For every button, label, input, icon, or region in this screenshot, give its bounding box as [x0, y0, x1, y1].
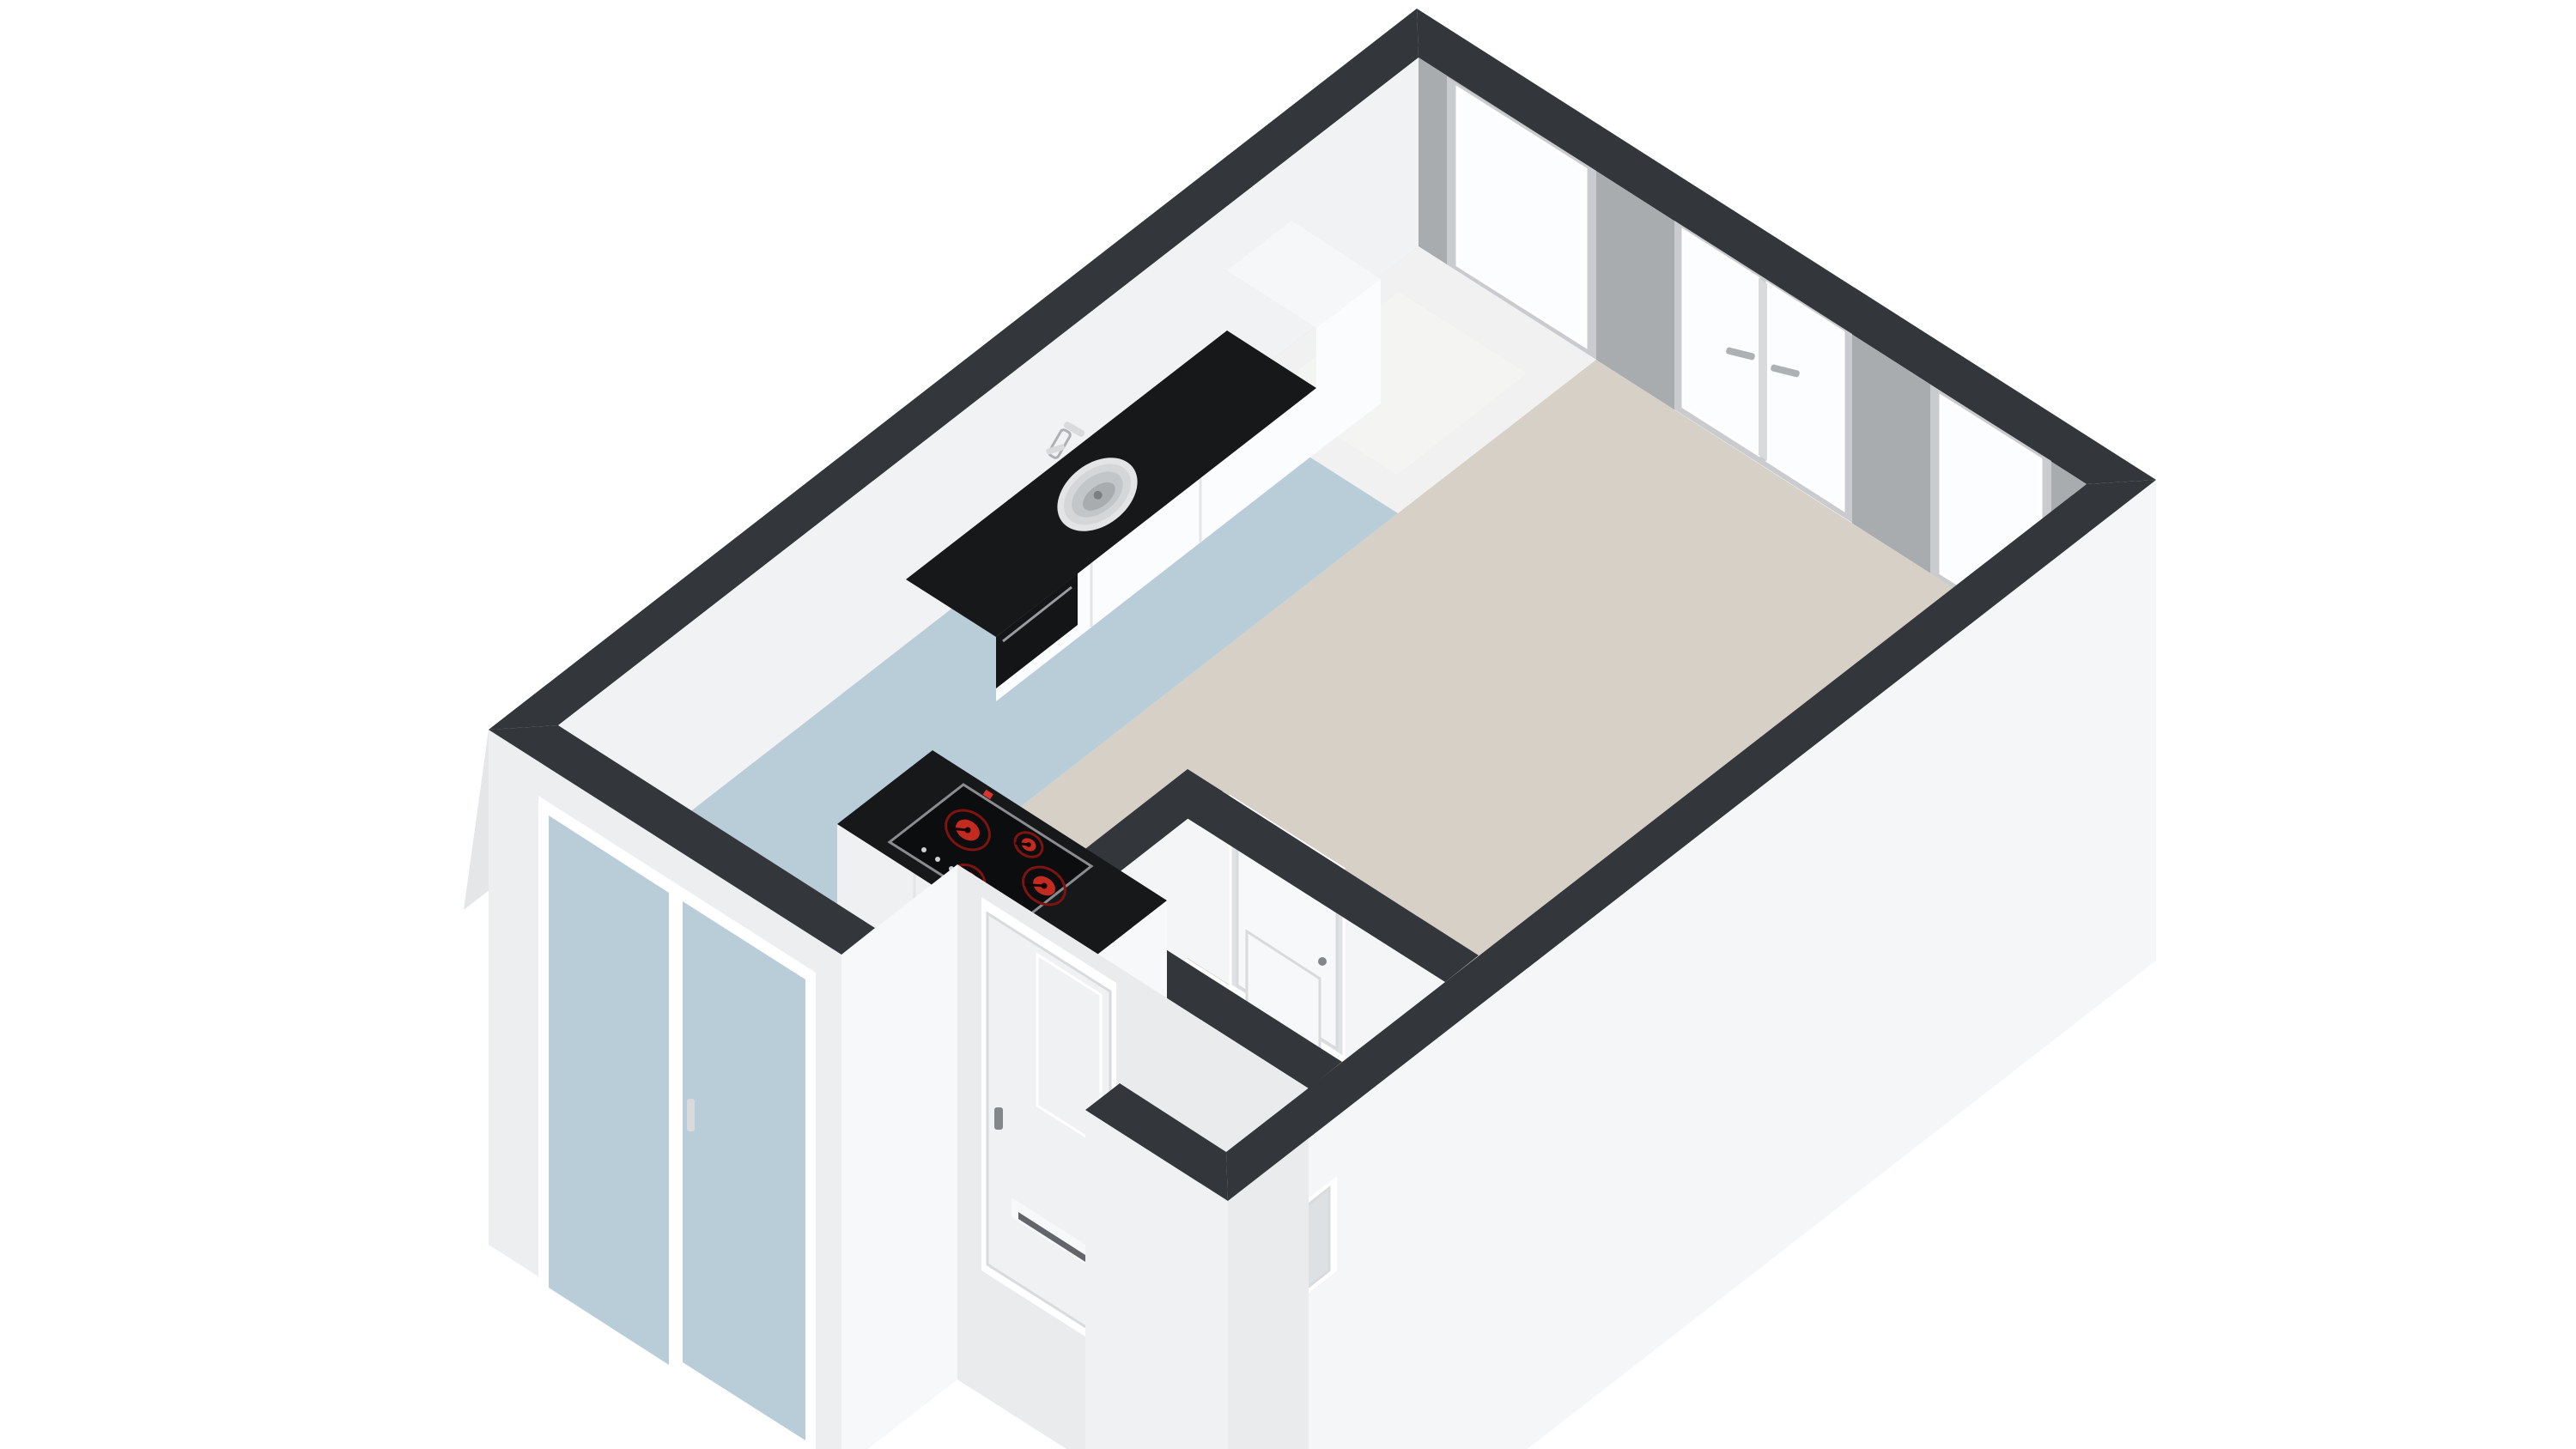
- living-hall-door-handle-icon: [1318, 957, 1327, 966]
- sliding-door-glass-left: [549, 815, 669, 1365]
- control-dot: [935, 857, 940, 862]
- floorplan-canvas: [0, 0, 2576, 1449]
- recess-west-reveal: [841, 864, 957, 1449]
- sliding-door-glass-right: [683, 901, 805, 1440]
- floorplan-3d-render: [0, 0, 2576, 1449]
- front-door-handle-icon: [994, 1107, 1003, 1130]
- sliding-door-handle-icon: [687, 1099, 695, 1131]
- control-dot: [921, 847, 927, 852]
- french-door-meeting-stile: [1759, 278, 1767, 461]
